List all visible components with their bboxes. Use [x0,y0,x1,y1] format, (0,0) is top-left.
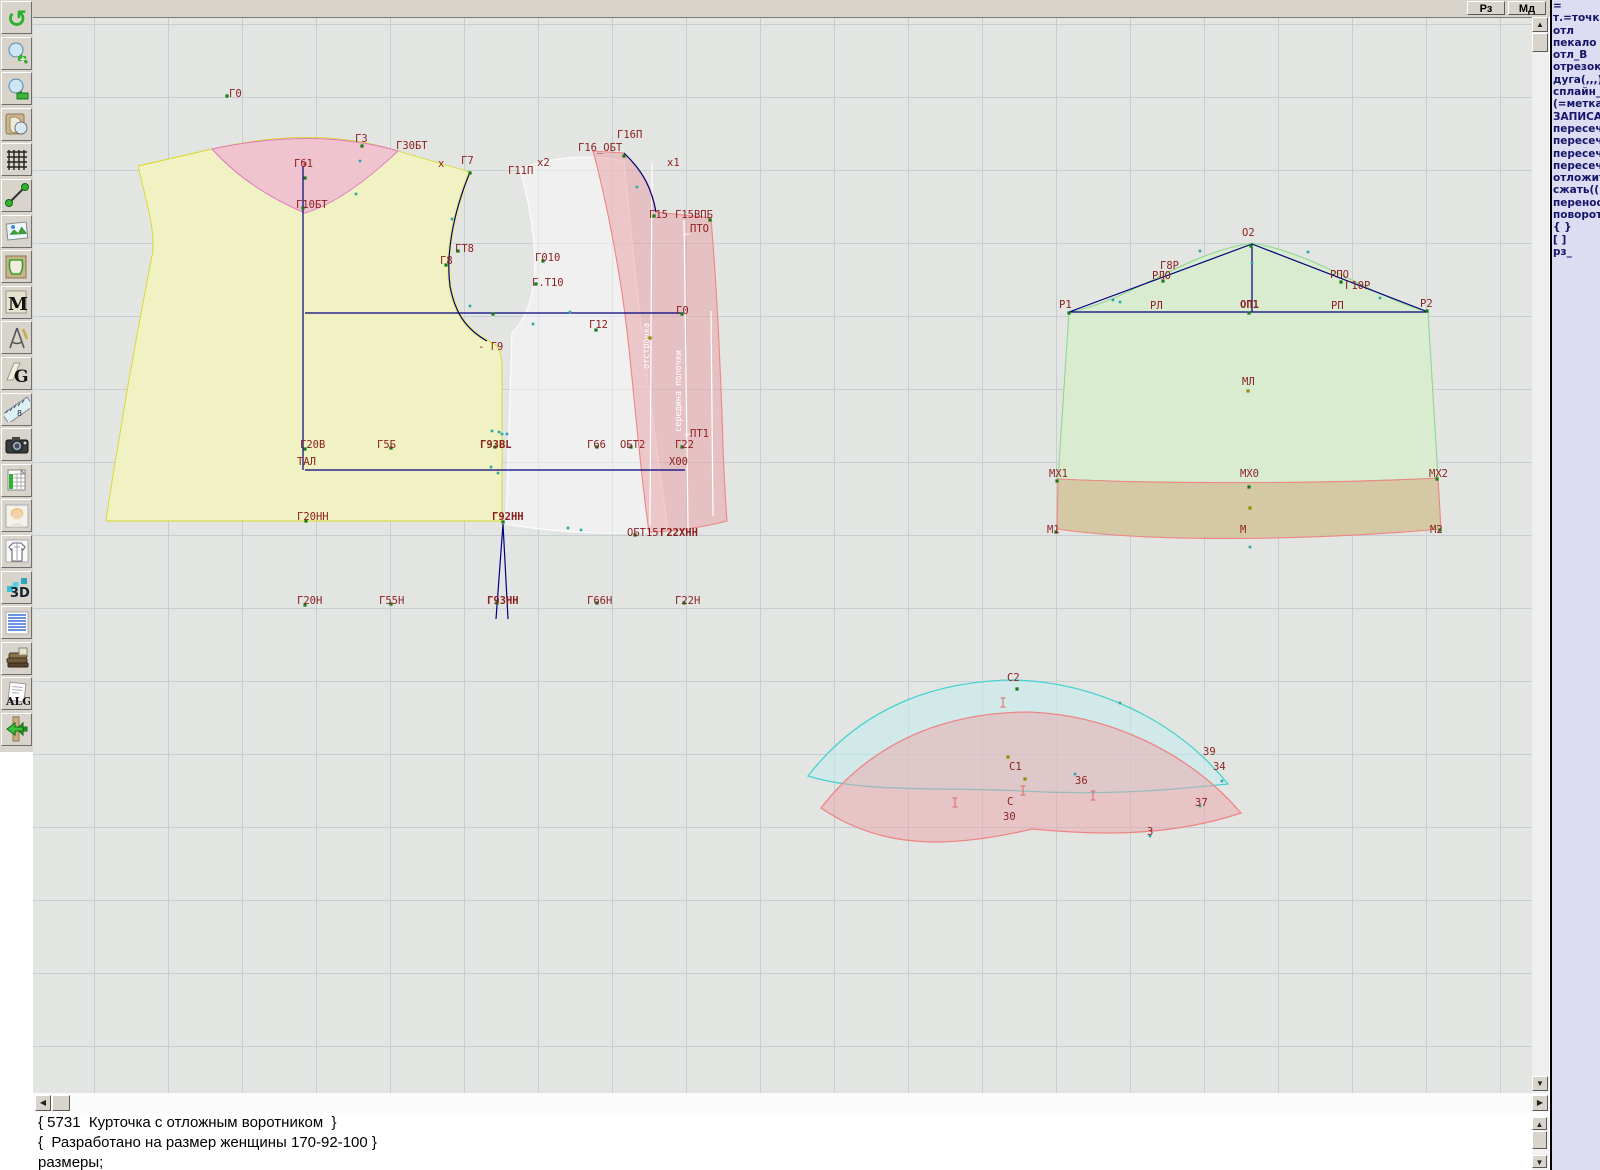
svg-text:G: G [14,367,29,386]
command-item[interactable]: [ ] [1552,234,1600,246]
console-scrollbar: ▲ ▼ [1532,1117,1549,1170]
point-label: Г11П [508,165,533,177]
command-item[interactable]: перенос [1552,197,1600,209]
point-marker [1015,687,1018,690]
svg-text:+: + [20,55,26,66]
table-button[interactable] [1,464,32,497]
point-marker [359,160,362,163]
seam-annotation: середина полочки [674,350,684,432]
camera-icon [4,432,30,458]
point-label: МХ1 [1049,468,1068,480]
point-label: Г30БТ [396,140,428,152]
point-label: Г16_ОБТ [578,142,623,154]
command-item[interactable]: рз_ [1552,246,1600,258]
grid-button[interactable] [1,143,32,176]
rz-mode-button[interactable]: Рз [1467,1,1505,15]
piece-sleeve [1058,243,1438,483]
point-label: РП [1331,300,1344,312]
ruler-icon: 8 [4,396,30,422]
point-marker [1246,389,1249,392]
point-marker [498,431,501,434]
grading-button[interactable]: G [1,357,32,390]
point-marker [569,311,572,314]
point-marker [1199,250,1202,253]
command-item[interactable]: пересеч [1552,123,1600,135]
point-label: Г12 [589,319,608,331]
point-label: З [1147,826,1153,838]
svg-text:M: M [8,294,28,315]
point-label: З6 [1075,775,1088,787]
console-line: размеры; [0,1153,1550,1170]
point-label: Г22Н [675,595,700,607]
point-label: ОБТ2 [620,439,645,451]
point-marker [1249,244,1252,247]
point-marker [1006,755,1009,758]
point-label: М1 [1047,524,1060,536]
command-item[interactable]: ЗАПИСА [1552,111,1600,123]
top-bar: Рз Мд [33,0,1550,17]
point-label: Г7 [461,155,474,167]
algorithm-console[interactable]: { 5731 Курточка с отложным воротником }{… [0,1113,1550,1170]
point-label: С2 [1007,672,1020,684]
undo-button[interactable]: ↺ [1,1,32,34]
point-label: ⌐ [685,429,691,441]
point-label: М [1240,524,1246,536]
table-icon [4,467,30,493]
scroll-up-icon[interactable]: ▲ [1532,17,1548,32]
canvas-horizontal-scrollbar: ◀ ▶ [33,1093,1549,1113]
console-line: { 5731 Курточка с отложным воротником } [0,1113,1550,1133]
measurements-button[interactable]: M [1,286,32,319]
point-label: ПТ1 [690,428,709,440]
svg-text:8: 8 [17,409,22,418]
console-scroll-up-icon[interactable]: ▲ [1532,1117,1547,1130]
seam-annotation: отстрочка [642,323,652,369]
point-marker [355,193,358,196]
command-item[interactable]: пересеч [1552,135,1600,147]
point-marker [469,305,472,308]
command-item[interactable]: = [1552,0,1600,12]
point-label: х2 [537,157,550,169]
point-label: х [438,158,444,170]
point-label: Р2 [1420,298,1433,310]
point-label: МЛ [1242,376,1255,388]
point-label: Г20Н [297,595,322,607]
point-label: ГТ8 [455,243,474,255]
3d-icon: 3D [4,574,30,600]
books-icon [4,645,30,671]
command-list-panel: =т.=точкаотлпекалоотл_Вотрезокдуга(,,,)с… [1550,0,1600,1170]
point-marker [1248,506,1251,509]
zoom-in-icon: + [4,40,30,66]
console-scroll-down-icon[interactable]: ▼ [1532,1155,1547,1168]
notes-button[interactable] [1,606,32,639]
grid-icon [4,147,30,173]
point-marker [622,154,625,157]
zoom-out-icon [4,76,30,102]
command-item[interactable]: отл_В [1552,49,1600,61]
point-label: Г16П [617,129,642,141]
point-label: Г9ЗВL [480,439,512,451]
command-item[interactable]: сжать(() [1552,184,1600,196]
point-label: Р1 [1059,299,1072,311]
point-label: МХ0 [1240,468,1259,480]
md-mode-button[interactable]: Мд [1508,1,1546,15]
point-label: ТАЛ [297,456,316,468]
3d-button[interactable]: 3D [1,571,32,604]
point-label: 30 [1003,811,1016,823]
point-label: Г22ХНН [660,527,698,539]
segment-button[interactable] [1,179,32,212]
point-marker [1251,262,1254,265]
point-marker [451,218,454,221]
drawing-canvas[interactable]: Г0Г3Г30БТГб1Г10БТхГ7х2Г11ПГ16_ОБТГ16Пх1Г… [33,17,1532,1093]
point-marker [580,529,583,532]
point-label: З7 [1195,797,1208,809]
point-label: Гб1 [294,158,313,170]
measurements-icon: M [4,289,30,315]
point-label: З9 [1203,746,1216,758]
pattern-cad-app: ↺+MG83DALG Рз Мд Г0Г3Г30БТГб1Г10БТхГ7 [0,0,1600,1170]
point-label: Х00 [669,456,688,468]
point-label: Г20НН [297,511,329,523]
point-label: ⌐ [684,229,690,241]
point-label: Г55Н [379,595,404,607]
point-label: О2 [1242,227,1255,239]
command-item[interactable]: пересеч [1552,160,1600,172]
svg-text:3D: 3D [10,586,30,600]
point-label: ОП1 [1240,299,1259,311]
point-marker [636,186,639,189]
command-item[interactable]: дуга(,,,) [1552,74,1600,86]
point-label: Г15ВПБ [675,209,713,221]
command-item[interactable]: сплайн_ [1552,86,1600,98]
console-scroll-thumb[interactable] [1532,1131,1547,1149]
command-item[interactable]: поворот [1552,209,1600,221]
point-label: - Г9 [478,341,503,353]
point-marker [491,312,494,315]
point-marker [468,171,471,174]
point-label: Г5Б [377,439,396,451]
model-photo-icon [4,503,30,529]
point-marker [497,472,500,475]
hscroll-thumb[interactable] [52,1095,70,1111]
preview-piece-button[interactable] [1,108,32,141]
point-marker [1247,311,1250,314]
left-toolbar: ↺+MG83DALG [0,0,33,752]
point-label: Г10Р [1345,280,1370,292]
exit-button[interactable] [1,713,32,746]
vscroll-thumb[interactable] [1532,33,1548,52]
garment-sketch-icon [4,538,30,564]
point-marker [1119,702,1122,705]
point-marker [491,430,494,433]
canvas-vertical-scrollbar: ▲ ▼ [1532,17,1549,1093]
svg-text:↺: ↺ [7,5,27,31]
command-item[interactable]: отрезок [1552,61,1600,73]
point-label: Г15 [649,209,668,221]
point-label: Г10БТ [296,199,328,211]
point-label: Г8 [440,255,453,267]
scroll-down-icon[interactable]: ▼ [1532,1076,1548,1091]
algorithm-icon: ALG [4,681,30,707]
point-label: Г0 [676,305,689,317]
point-label: Г66Н [587,595,612,607]
command-item[interactable]: (=метка [1552,98,1600,110]
point-marker [303,176,306,179]
exit-icon [4,716,30,742]
command-item[interactable]: отл [1552,25,1600,37]
scroll-right-icon[interactable]: ▶ [1532,1095,1548,1111]
point-label: РЛО [1152,270,1171,282]
pattern-piece-icon [4,254,30,280]
point-marker [506,433,509,436]
books-button[interactable] [1,642,32,675]
point-marker [490,466,493,469]
zoom-out-button[interactable] [1,72,32,105]
point-marker [1112,299,1115,302]
segment-icon [4,182,30,208]
point-label: М2 [1430,524,1443,536]
point-label: ПТО [690,223,709,235]
scroll-left-icon[interactable]: ◀ [35,1095,51,1111]
console-line: { Разработано на размер женщины 170-92-1… [0,1133,1550,1153]
point-marker [501,433,504,436]
picture-button[interactable] [1,215,32,248]
command-item[interactable]: отложит [1552,172,1600,184]
garment-sketch-button[interactable] [1,535,32,568]
pattern-drawing: Г0Г3Г30БТГб1Г10БТхГ7х2Г11ПГ16_ОБТГ16Пх1Г… [33,18,1532,1094]
ruler-button[interactable]: 8 [1,393,32,426]
point-marker [532,323,535,326]
grading-icon: G [4,360,30,386]
point-label: С1 [1009,761,1022,773]
picture-icon [4,218,30,244]
point-label: Г3 [355,133,368,145]
point-label: Г66 [587,439,606,451]
camera-button[interactable] [1,428,32,461]
point-marker [1023,777,1026,780]
point-label: ОБТ15 [627,527,659,539]
point-marker [1307,251,1310,254]
point-marker [567,527,570,530]
drafting-compass-button[interactable] [1,321,32,354]
point-label: Г.Т10 [532,277,564,289]
undo-icon: ↺ [4,5,30,31]
point-label: З4 [1213,761,1226,773]
point-marker [1221,780,1224,783]
notes-icon [4,610,30,636]
point-label: С [1007,796,1013,808]
command-item[interactable]: пекало [1552,37,1600,49]
point-label: Г0 [229,88,242,100]
point-label: РЛ [1150,300,1163,312]
point-label: Г010 [535,252,560,264]
point-label: МХ2 [1429,468,1448,480]
preview-piece-icon [4,111,30,137]
point-marker [1119,301,1122,304]
zoom-in-button[interactable]: + [1,37,32,70]
point-label: Г9ЗНН [487,595,519,607]
point-label: Г20В [300,439,325,451]
command-item[interactable]: { } [1552,221,1600,233]
svg-text:ALG: ALG [5,695,30,707]
point-label: х1 [667,157,680,169]
point-marker [1249,546,1252,549]
command-item[interactable]: т.=точка [1552,12,1600,24]
pattern-piece-button[interactable] [1,250,32,283]
algorithm-button[interactable]: ALG [1,677,32,710]
point-marker [1067,311,1070,314]
point-label: Г92НН [492,511,524,523]
point-marker [1247,485,1250,488]
point-marker [1379,297,1382,300]
command-item[interactable]: пересеч [1552,148,1600,160]
model-photo-button[interactable] [1,499,32,532]
drafting-compass-icon [4,325,30,351]
